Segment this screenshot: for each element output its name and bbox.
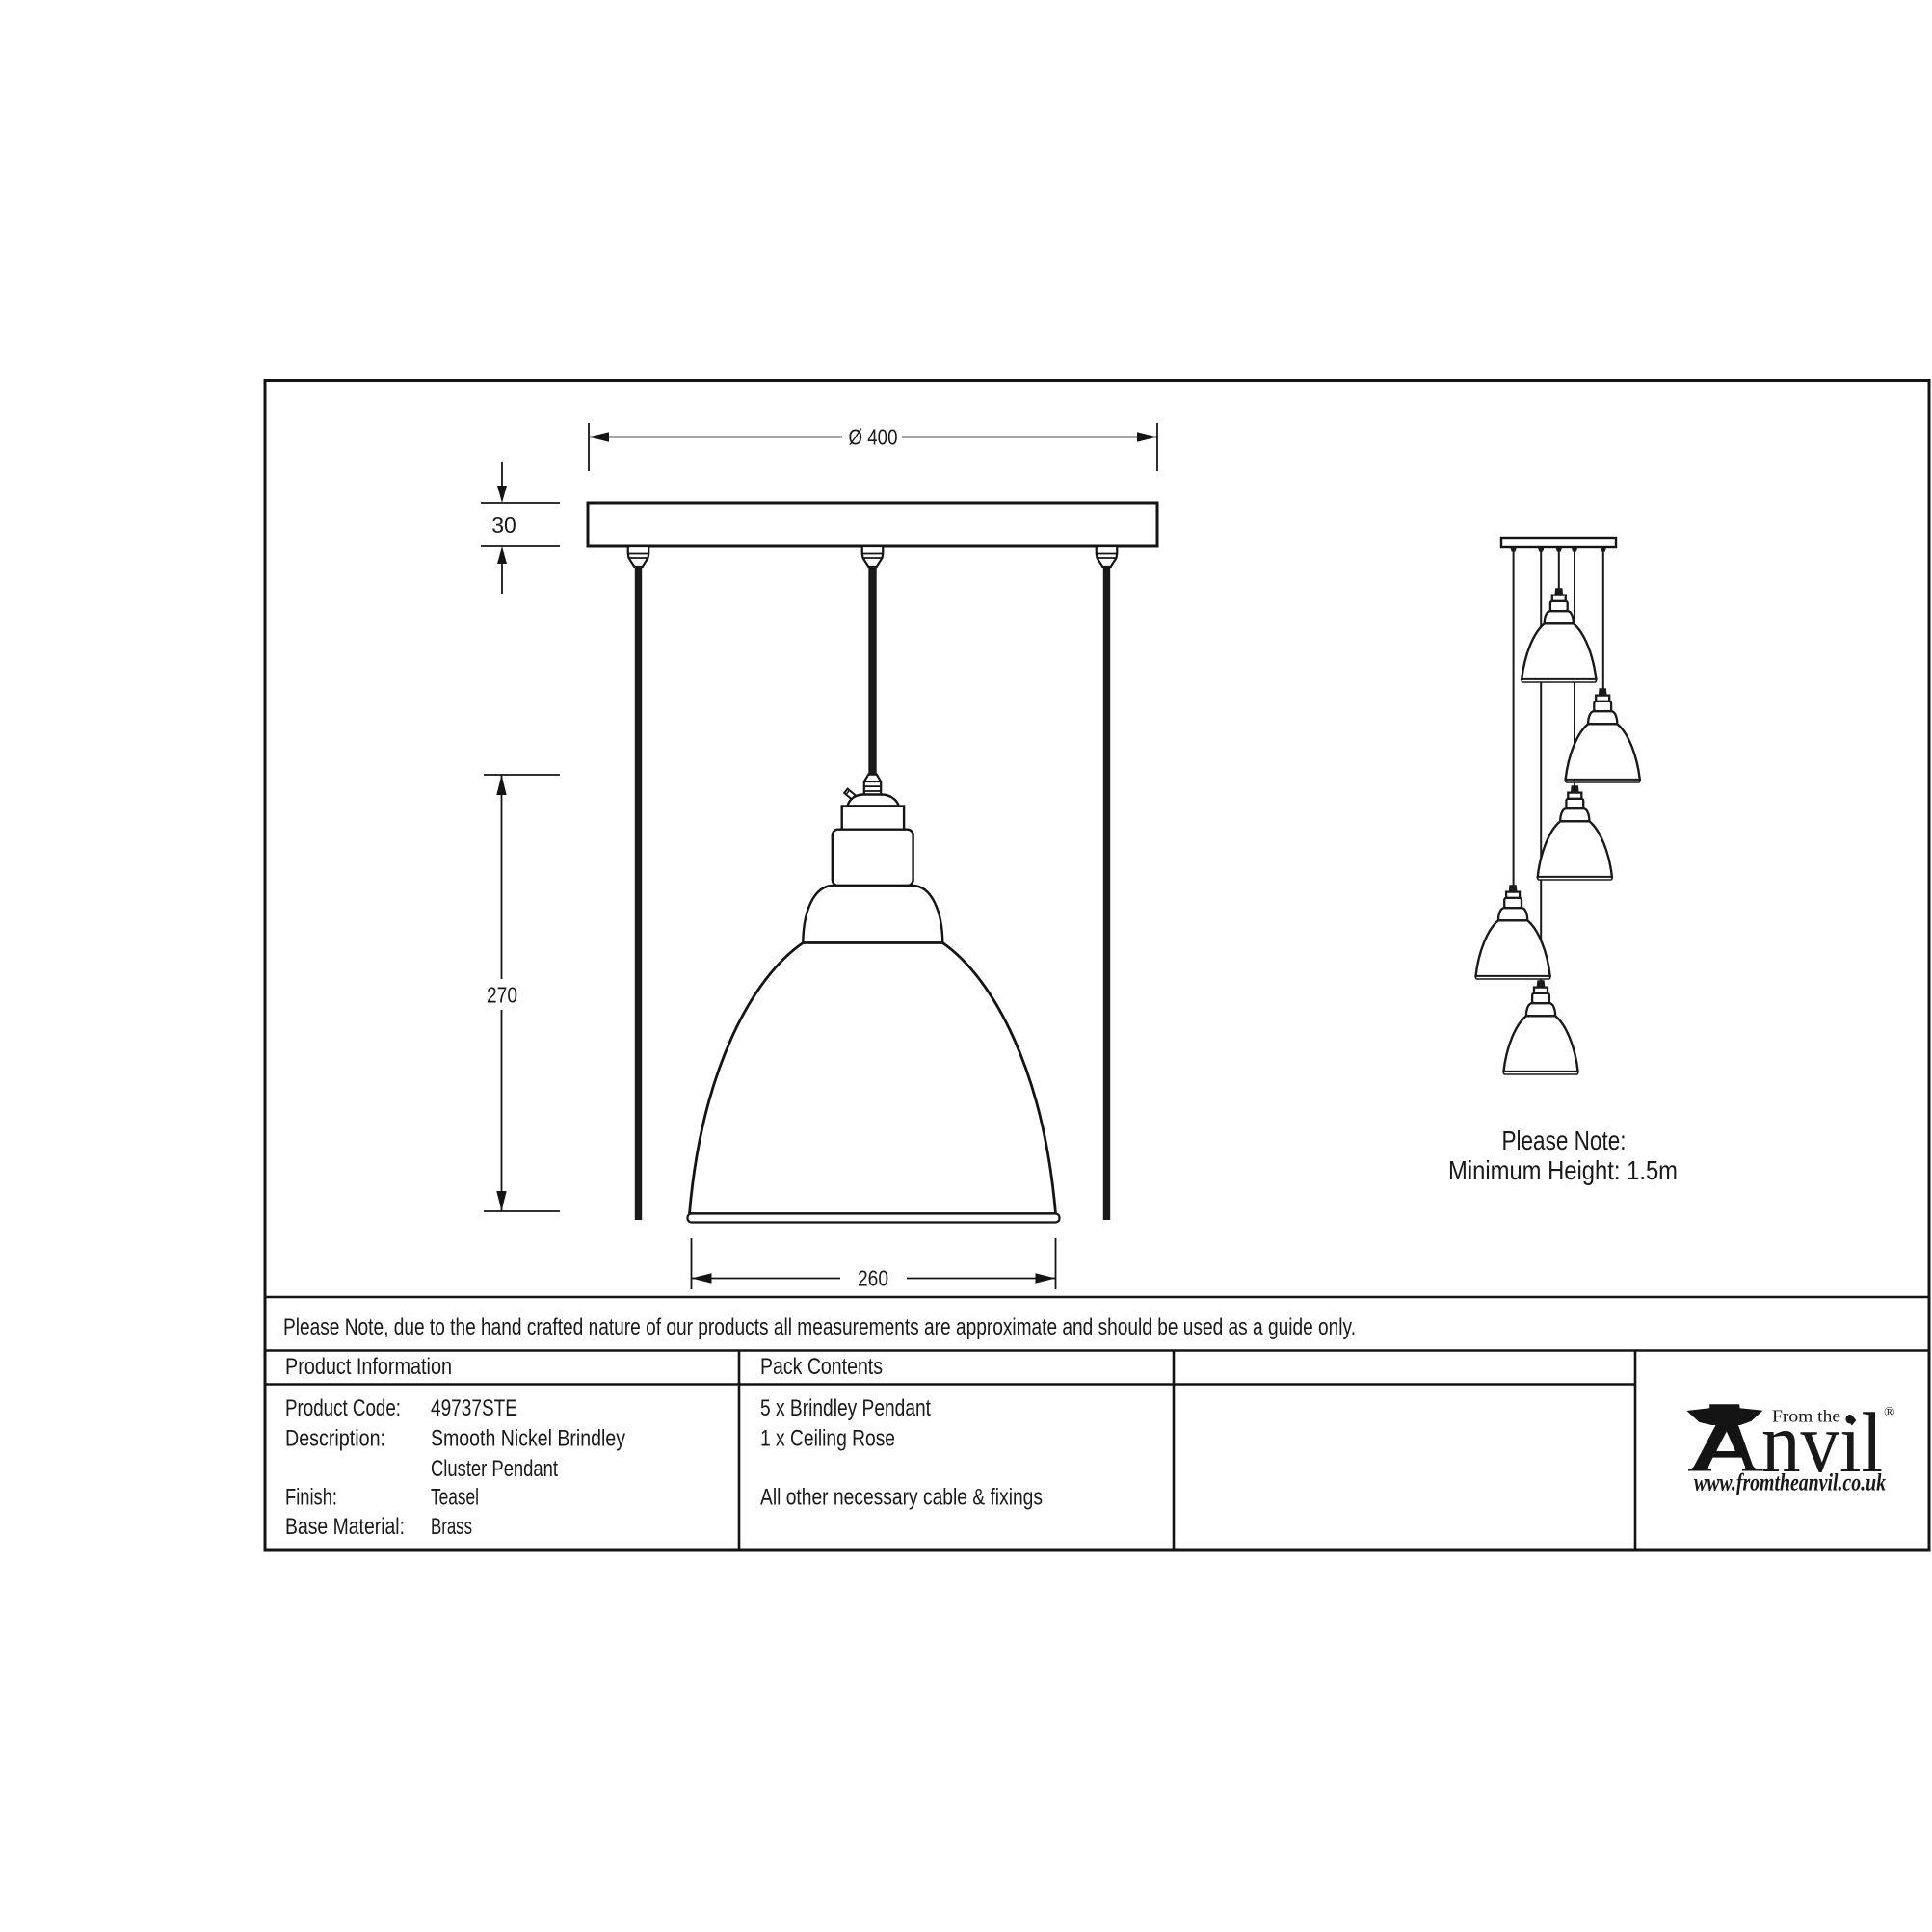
svg-text:30: 30 [491, 513, 516, 538]
svg-text:Brass: Brass [431, 1514, 472, 1540]
svg-text:1 x Ceiling Rose: 1 x Ceiling Rose [760, 1426, 895, 1452]
svg-text:5 x Brindley Pendant: 5 x Brindley Pendant [760, 1395, 931, 1421]
svg-text:Pack Contents: Pack Contents [760, 1354, 883, 1380]
svg-text:Description:: Description: [285, 1426, 385, 1452]
svg-text:260: 260 [858, 1266, 888, 1291]
svg-text:®: ® [1884, 1405, 1894, 1420]
svg-text:Minimum Height: 1.5m: Minimum Height: 1.5m [1448, 1155, 1678, 1185]
svg-text:270: 270 [487, 983, 517, 1008]
svg-text:www.fromtheanvil.co.uk: www.fromtheanvil.co.uk [1694, 1470, 1886, 1496]
svg-text:Finish:: Finish: [285, 1485, 337, 1511]
svg-text:Cluster Pendant: Cluster Pendant [431, 1456, 558, 1482]
svg-text:Base Material:: Base Material: [285, 1514, 405, 1540]
svg-text:Product Information: Product Information [285, 1354, 452, 1380]
svg-text:Teasel: Teasel [431, 1485, 479, 1511]
svg-text:All other necessary cable & fi: All other necessary cable & fixings [760, 1485, 1043, 1511]
svg-text:Product Code:: Product Code: [285, 1395, 401, 1421]
svg-text:Smooth Nickel Brindley: Smooth Nickel Brindley [431, 1426, 625, 1452]
svg-text:Please Note, due to the hand c: Please Note, due to the hand crafted nat… [283, 1314, 1356, 1340]
svg-text:Ø 400: Ø 400 [849, 425, 898, 450]
svg-text:49737STE: 49737STE [431, 1395, 517, 1421]
svg-text:Please Note:: Please Note: [1502, 1125, 1627, 1155]
